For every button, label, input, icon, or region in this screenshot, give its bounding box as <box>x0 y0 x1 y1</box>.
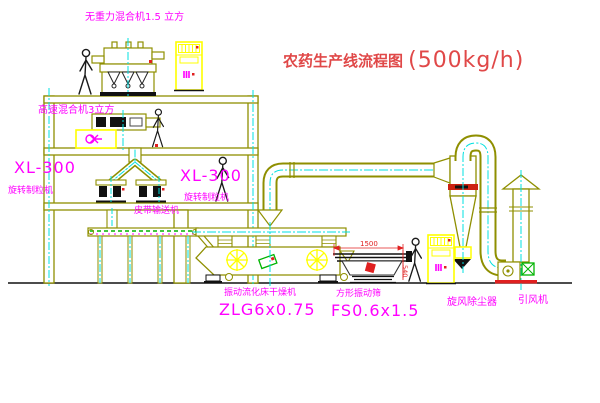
label-screen-model: FS0.6x1.5 <box>331 301 419 320</box>
rotary-granulators <box>96 176 166 202</box>
label-granulator-left-name: 旋转制粒机 <box>8 187 53 196</box>
label-granulator-right-model: XL-300 <box>180 166 242 185</box>
label-dryer-model: ZLG6x0.75 <box>219 300 316 319</box>
process-flow-diagram: 1500 540 <box>0 0 600 403</box>
label-dryer-name: 振动流化床干燥机 <box>224 289 296 298</box>
label-cyclone: 旋风除尘器 <box>447 298 497 308</box>
screen-dim-width: 1500 <box>360 240 378 248</box>
worker-top-floor <box>79 49 92 94</box>
title-text: 农药生产线流程图 <box>283 52 403 70</box>
diagram-title: 农药生产线流程图 (500kg/h) <box>283 48 524 73</box>
label-granulator-left-model: XL-300 <box>14 158 76 177</box>
exhaust-duct <box>258 162 444 226</box>
granulator-left <box>96 176 126 202</box>
control-cabinet-1 <box>174 42 204 91</box>
label-gravity-mixer: 无重力混合机1.5 立方 <box>85 13 184 23</box>
granulator-right <box>136 176 166 202</box>
label-belt-conveyor: 皮带输送机 <box>134 207 179 216</box>
fluid-bed-dryer <box>192 222 354 288</box>
induced-draft-fan <box>495 262 537 284</box>
control-cabinet-2 <box>426 235 456 284</box>
gravity-free-mixer <box>92 38 164 96</box>
screen-dim-height: 540 <box>401 265 409 277</box>
label-screen-name: 方形振动筛 <box>336 290 381 299</box>
belt-conveyor <box>88 208 216 283</box>
label-fan: 引风机 <box>518 296 548 306</box>
high-speed-mixer <box>76 110 160 150</box>
label-speed-mixer: 高速混合机3立方 <box>38 106 114 116</box>
title-capacity: (500kg/h) <box>408 48 524 73</box>
worker-second-floor <box>153 109 164 146</box>
label-granulator-right-name: 旋转制粒机 <box>184 194 229 203</box>
